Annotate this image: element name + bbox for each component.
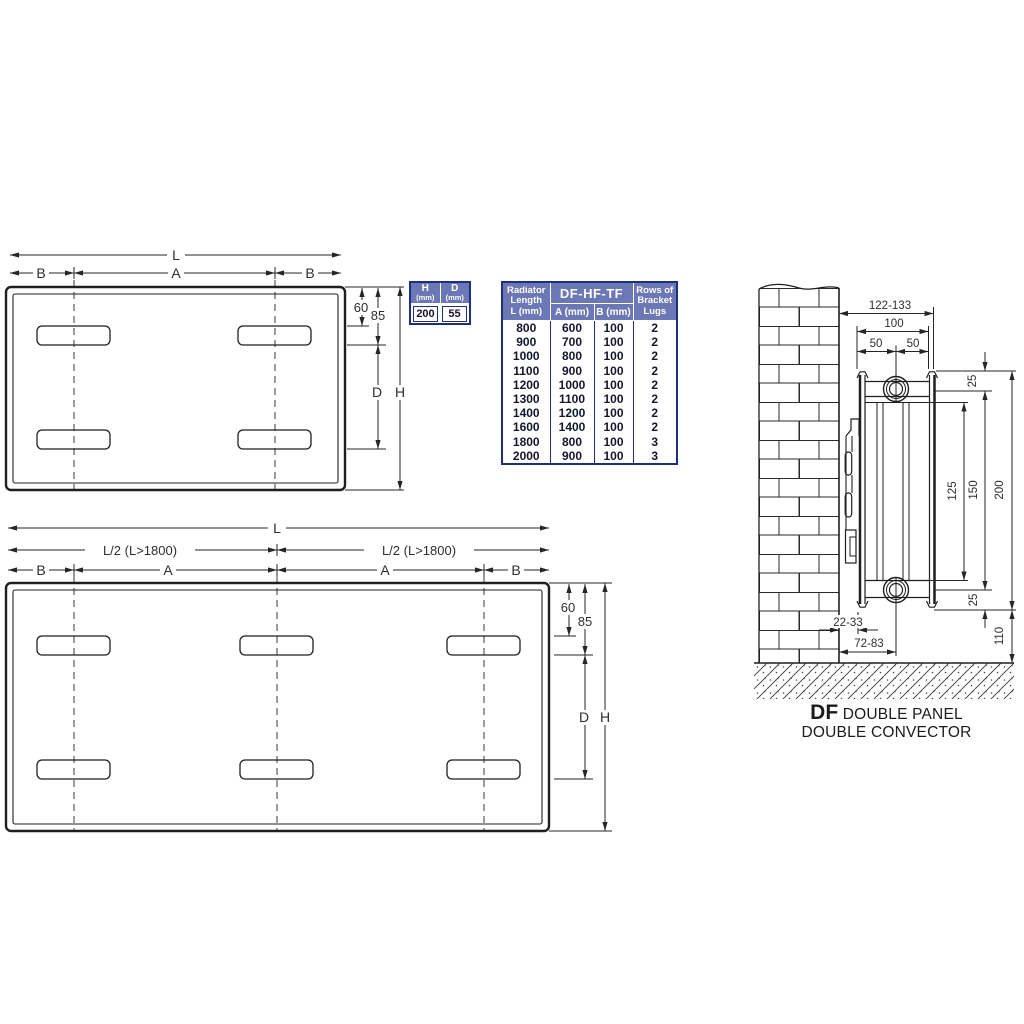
table-row: 18008001003 — [502, 435, 677, 449]
brick-wall — [759, 284, 839, 663]
technical-drawing-page: .d{stroke:#262626;stroke-width:1;fill:no… — [0, 0, 1024, 1024]
caption-line-1: DF DOUBLE PANEL — [760, 704, 1013, 724]
dim-label-122-133: 122-133 — [869, 300, 911, 312]
table-row: 11009001002 — [502, 364, 677, 378]
diagram-caption: DF DOUBLE PANEL DOUBLE CONVECTOR — [760, 704, 1013, 742]
hd-dimensions-table: H (mm) D (mm) 200 55 — [409, 281, 471, 325]
dim-label-110: 110 — [994, 627, 1006, 645]
dim-label-B-left: B — [36, 562, 45, 578]
dim-label-200: 200 — [994, 480, 1006, 499]
length-column-header: Radiator Length L (mm) — [502, 282, 550, 321]
dim-label-25-bottom: 25 — [968, 594, 980, 607]
dim-label-D: D — [372, 384, 382, 400]
table-row: 120010001002 — [502, 378, 677, 392]
dim-label-100: 100 — [884, 318, 903, 330]
radiator-spec-table: Radiator Length L (mm) DF-HF-TF Rows of … — [501, 281, 678, 465]
dim-label-22-33: 22-33 — [833, 617, 862, 629]
dim-label-B-left: B — [36, 265, 45, 281]
dim-label-A-left: A — [163, 562, 173, 578]
radiator-view-two-lug-rows: L B A B 60 85 D H — [6, 247, 408, 490]
h-column-unit: (mm) — [411, 294, 440, 302]
floor-hatch — [754, 663, 1014, 699]
dim-label-H: H — [395, 384, 405, 400]
caption-title: DOUBLE PANEL — [843, 706, 963, 723]
lugs-column-header: Rows of Bracket Lugs — [633, 282, 677, 321]
wall-bracket — [845, 419, 859, 563]
table-row: 10008001002 — [502, 349, 677, 363]
a-column-header: A (mm) — [550, 304, 594, 321]
caption-line-2: DOUBLE CONVECTOR — [760, 724, 1013, 742]
model-code: DF — [810, 701, 838, 724]
table-row: 8006001002 — [502, 321, 677, 336]
drawing-canvas: .d{stroke:#262626;stroke-width:1;fill:no… — [0, 0, 1024, 1024]
radiator-outline — [6, 287, 345, 490]
dim-label-L: L — [172, 247, 180, 263]
d-value: 55 — [442, 306, 467, 322]
dim-label-B-right: B — [305, 265, 314, 281]
hd-table-header-d: D (mm) — [440, 282, 470, 304]
b-column-header: B (mm) — [594, 304, 633, 321]
dim-label-H: H — [600, 709, 610, 725]
d-column-unit: (mm) — [441, 294, 470, 302]
dim-label-85: 85 — [371, 308, 385, 323]
table-row: 20009001003 — [502, 449, 677, 464]
dim-label-50-right: 50 — [907, 338, 920, 350]
dim-label-72-83: 72-83 — [854, 638, 883, 650]
dim-label-A: A — [171, 265, 181, 281]
h-value: 200 — [413, 306, 438, 322]
radiator-view-three-lug-columns: L L/2 (L>1800) L/2 (L>1800) B A A B — [6, 520, 613, 831]
dim-label-A-right: A — [380, 562, 390, 578]
radiator-inner-outline — [13, 294, 338, 483]
bracket-foot — [846, 530, 857, 563]
dim-label-50-left: 50 — [870, 338, 883, 350]
radiator-section — [857, 346, 938, 656]
table-row: 9007001002 — [502, 335, 677, 349]
dim-label-60: 60 — [561, 600, 575, 615]
dim-label-L: L — [273, 520, 281, 536]
dim-label-60: 60 — [354, 300, 368, 315]
df-hf-tf-group-header: DF-HF-TF — [550, 282, 633, 304]
table-row: 140012001002 — [502, 406, 677, 420]
dim-label-L2-right: L/2 (L>1800) — [382, 543, 456, 558]
dim-label-150: 150 — [968, 480, 980, 499]
dim-label-125: 125 — [947, 481, 959, 500]
dim-label-D: D — [579, 709, 589, 725]
wall-section-view: 122-133 100 50 50 25 150 125 200 25 110 … — [754, 284, 1016, 699]
hd-table-header-h: H (mm) — [410, 282, 440, 304]
dim-label-25-top: 25 — [967, 375, 979, 388]
dim-label-B-right: B — [511, 562, 520, 578]
table-row: 130011001002 — [502, 392, 677, 406]
dim-label-85: 85 — [578, 614, 592, 629]
dim-label-L2-left: L/2 (L>1800) — [103, 543, 177, 558]
table-row: 160014001002 — [502, 420, 677, 434]
